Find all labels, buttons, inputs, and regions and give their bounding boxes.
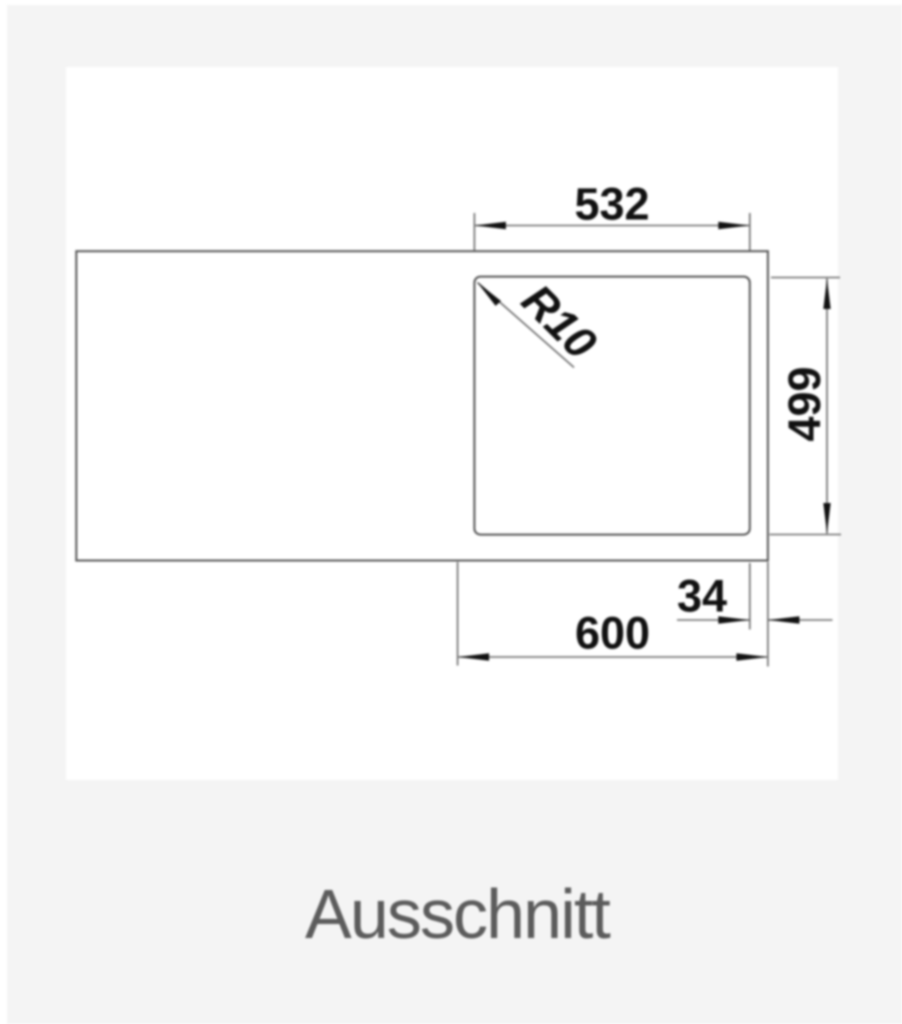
svg-text:499: 499 xyxy=(779,366,830,441)
svg-text:532: 532 xyxy=(574,179,649,230)
svg-text:R10: R10 xyxy=(512,274,606,368)
svg-text:600: 600 xyxy=(575,608,650,659)
svg-text:34: 34 xyxy=(677,571,727,622)
